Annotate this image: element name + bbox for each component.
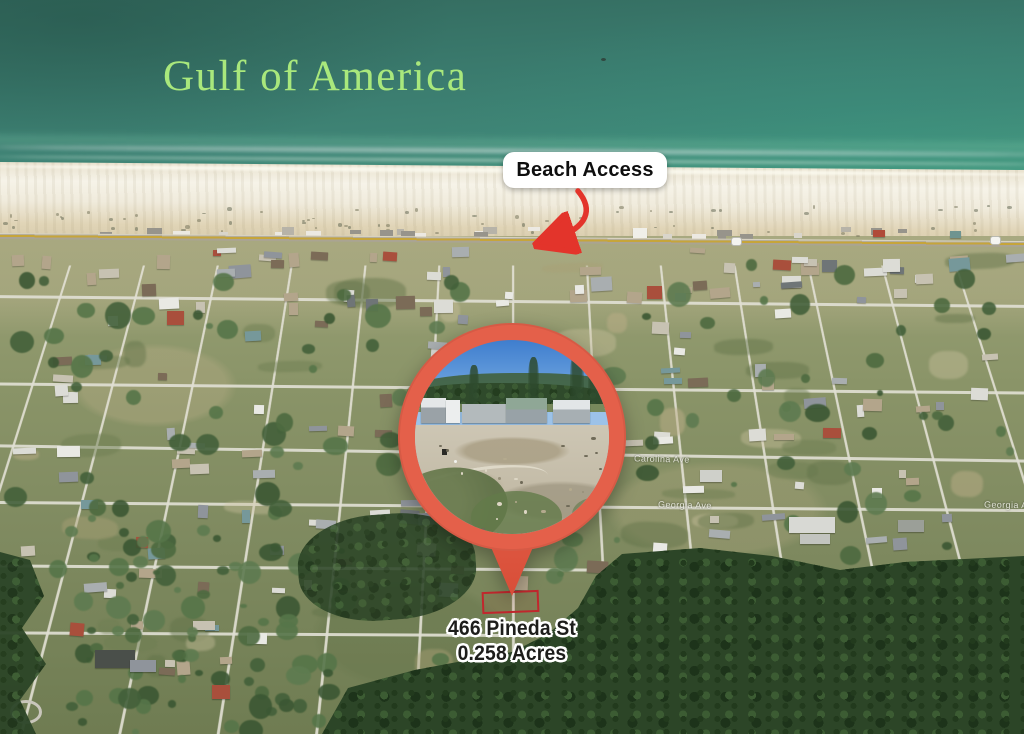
house <box>496 299 510 306</box>
dune-scrub <box>185 225 190 229</box>
ground-speck <box>584 455 588 457</box>
house <box>693 281 708 291</box>
house <box>245 331 262 341</box>
lot-size-line: 0.258 Acres <box>448 641 576 666</box>
house <box>172 459 191 469</box>
tree <box>224 720 239 733</box>
tree <box>112 500 129 518</box>
tree <box>790 294 810 314</box>
dune-scrub <box>87 211 91 214</box>
beach-house <box>282 227 294 234</box>
tree <box>779 401 801 422</box>
tree <box>318 684 339 700</box>
ground-patch <box>607 313 627 334</box>
tree <box>279 699 294 711</box>
dune-scrub <box>938 209 943 211</box>
house <box>781 281 802 289</box>
house <box>505 292 513 300</box>
beach-access-text: Beach Access <box>516 159 653 182</box>
tree <box>834 265 855 285</box>
house <box>753 282 760 288</box>
tree <box>758 369 775 387</box>
tree <box>74 592 93 611</box>
tree <box>805 404 830 422</box>
tree <box>647 399 664 416</box>
ground-speck <box>593 513 596 516</box>
pin-circle <box>398 323 626 551</box>
tree <box>119 528 129 537</box>
tree <box>239 720 263 734</box>
tree <box>48 357 59 368</box>
ground-speck <box>569 488 572 491</box>
tree <box>209 406 223 420</box>
tree <box>44 328 64 344</box>
house <box>651 321 668 334</box>
house <box>309 425 327 431</box>
dune-scrub <box>56 213 59 217</box>
building <box>789 517 835 533</box>
ground-patch <box>929 351 968 379</box>
house <box>1005 253 1024 262</box>
tree <box>78 718 87 725</box>
house <box>217 247 236 253</box>
tree <box>727 389 741 402</box>
tree <box>731 482 737 487</box>
tree <box>323 437 347 454</box>
ground-patch <box>950 470 983 497</box>
tree <box>217 566 228 574</box>
aerial-map-scene: Carolina Ave Georgia Ave Georgia Ave <box>0 0 1024 734</box>
tree <box>77 303 94 318</box>
tree <box>982 302 995 315</box>
tree <box>249 694 272 719</box>
house <box>863 398 882 411</box>
dune-scrub <box>227 207 232 211</box>
gulf-title: Gulf of America <box>163 52 467 101</box>
dune-scrub <box>813 205 815 209</box>
tree <box>99 350 113 362</box>
tree <box>270 446 284 458</box>
tree <box>126 572 137 582</box>
house <box>420 306 433 316</box>
house <box>21 545 36 556</box>
house <box>971 388 988 400</box>
ground-speck <box>439 445 443 447</box>
house <box>99 269 119 278</box>
house <box>57 446 80 457</box>
dune-scrub <box>338 223 343 227</box>
house <box>710 516 719 523</box>
tree <box>760 296 768 304</box>
tree <box>700 317 715 329</box>
house <box>197 505 208 518</box>
tree <box>746 259 758 271</box>
ground-patch <box>714 338 774 355</box>
tree <box>919 412 928 420</box>
house <box>590 276 612 291</box>
dune-scrub <box>515 215 519 219</box>
tree <box>777 456 795 470</box>
house <box>396 296 415 309</box>
house <box>458 315 468 325</box>
house <box>627 292 643 304</box>
tree <box>89 499 106 516</box>
beach-house <box>898 229 907 233</box>
tree <box>71 382 81 392</box>
beach-house <box>841 227 851 232</box>
house <box>254 405 265 415</box>
house <box>906 477 919 485</box>
house <box>284 292 299 301</box>
tree <box>270 543 281 552</box>
tree <box>429 321 445 334</box>
house <box>289 303 298 315</box>
ground-speck <box>503 458 506 460</box>
photo-building <box>446 400 460 423</box>
ground-speck <box>595 452 598 454</box>
house <box>12 255 24 267</box>
building <box>130 660 156 672</box>
house <box>723 263 735 273</box>
photo-building <box>553 400 590 423</box>
tree <box>302 344 315 354</box>
tree <box>187 627 198 637</box>
tree <box>636 465 658 481</box>
route-shield-icon <box>731 237 742 246</box>
dune-scrub <box>135 227 138 231</box>
house <box>775 308 792 318</box>
building <box>633 228 647 238</box>
tree <box>1006 447 1014 456</box>
property-inset-photo <box>415 340 609 534</box>
dune-scrub <box>472 215 477 217</box>
tree <box>862 427 877 440</box>
house <box>942 514 952 522</box>
tree <box>217 320 237 340</box>
building <box>950 231 961 238</box>
property-boundary <box>482 590 540 614</box>
house <box>87 273 97 285</box>
house <box>55 384 69 396</box>
house <box>434 300 453 313</box>
dune-scrub <box>669 211 673 214</box>
tree <box>557 571 564 577</box>
house <box>272 587 285 593</box>
house <box>426 272 440 280</box>
street-label: Georgia Ave <box>984 500 1024 511</box>
house <box>383 252 398 262</box>
house <box>647 286 662 299</box>
house <box>893 537 908 549</box>
ground-speck <box>591 437 596 440</box>
dune-scrub <box>135 214 138 217</box>
house <box>13 447 36 454</box>
dune-scrub <box>302 222 307 224</box>
beach-house <box>794 233 802 237</box>
house <box>899 470 906 478</box>
tree <box>286 666 312 685</box>
dune-scrub <box>673 225 675 227</box>
dune-scrub <box>109 218 112 221</box>
house <box>832 377 847 383</box>
house <box>575 285 584 295</box>
route-shield-icon <box>990 236 1001 245</box>
tree <box>934 298 949 312</box>
property-address-label: 466 Pineda St 0.258 Acres <box>448 616 576 666</box>
tree <box>126 390 141 405</box>
house <box>165 660 175 667</box>
house <box>664 378 682 384</box>
photo-grass <box>471 491 562 534</box>
dune-scrub <box>10 214 12 218</box>
photo-building <box>421 398 446 423</box>
tree <box>174 587 181 593</box>
house <box>452 247 469 257</box>
house <box>894 289 907 298</box>
tree <box>80 472 93 483</box>
tree <box>801 374 810 384</box>
tree <box>244 677 254 686</box>
ground-speck <box>497 502 502 506</box>
tree <box>365 304 391 329</box>
dune-scrub <box>650 210 652 212</box>
dune-scrub <box>711 227 714 229</box>
house <box>142 283 156 295</box>
tree <box>112 626 123 636</box>
tree <box>146 520 172 543</box>
building <box>873 230 885 237</box>
house <box>158 297 179 309</box>
dune-scrub <box>804 212 809 215</box>
street-label: Carolina Ave <box>634 453 690 464</box>
building <box>95 650 135 668</box>
tree <box>444 275 459 290</box>
building <box>700 470 722 482</box>
building <box>212 685 230 699</box>
dune-scrub <box>619 206 624 209</box>
house <box>857 297 867 303</box>
tree <box>276 622 299 640</box>
tree <box>686 413 699 428</box>
tree <box>865 492 887 515</box>
house <box>688 377 708 387</box>
beach-house <box>350 230 361 235</box>
dune-scrub <box>974 209 978 211</box>
ground-speck <box>461 472 463 475</box>
dune-scrub <box>856 235 860 237</box>
house <box>369 253 377 263</box>
house <box>580 266 601 275</box>
house <box>177 661 191 675</box>
tree <box>181 596 205 619</box>
house <box>271 260 284 269</box>
house <box>774 434 794 440</box>
tree <box>19 272 35 289</box>
boat-speck <box>601 58 606 61</box>
house <box>158 372 167 380</box>
beach-house <box>717 230 732 235</box>
house <box>220 657 232 664</box>
dune-scrub <box>348 226 351 229</box>
street-label: Georgia Ave <box>658 499 712 510</box>
house <box>682 486 703 494</box>
house <box>338 426 354 437</box>
tree <box>155 565 176 586</box>
ground-speck <box>446 449 449 452</box>
tree <box>376 453 400 476</box>
photo-building <box>462 404 507 423</box>
house <box>156 254 169 268</box>
dune-scrub <box>415 208 418 212</box>
house <box>936 402 944 410</box>
tree <box>88 515 96 522</box>
house <box>749 428 767 441</box>
tree <box>323 669 333 677</box>
ground-speck <box>582 491 584 494</box>
ground-speck <box>561 445 565 447</box>
house <box>680 332 691 338</box>
house <box>253 469 275 477</box>
house <box>69 622 84 637</box>
tree <box>213 273 234 291</box>
house <box>674 348 686 356</box>
tree <box>39 276 49 285</box>
tree <box>172 650 186 661</box>
tree <box>554 546 578 572</box>
dune-scrub <box>61 217 64 220</box>
tree <box>118 688 141 710</box>
house <box>773 259 791 270</box>
tree <box>4 487 27 507</box>
tree <box>337 289 351 300</box>
dune-scrub <box>405 211 409 215</box>
tree <box>76 690 93 707</box>
dune-scrub <box>767 231 770 233</box>
tree <box>904 490 921 502</box>
beach-access-label: Beach Access <box>503 152 667 188</box>
house <box>167 310 184 324</box>
house <box>795 482 805 490</box>
dune-scrub <box>111 227 115 230</box>
tree <box>49 560 67 578</box>
house <box>242 510 250 523</box>
house <box>310 251 328 260</box>
house <box>189 464 208 475</box>
tree <box>105 302 130 329</box>
tree <box>932 411 943 420</box>
house <box>916 273 934 283</box>
house <box>242 450 263 458</box>
curved-arrow-icon <box>530 186 600 248</box>
house <box>288 253 299 267</box>
house <box>823 428 841 438</box>
tree <box>309 365 317 372</box>
house <box>792 257 808 263</box>
dune-scrub <box>3 222 7 225</box>
tree <box>132 729 139 734</box>
ground-speck <box>485 469 487 472</box>
house <box>53 374 74 383</box>
house <box>883 259 900 272</box>
tree <box>837 501 857 523</box>
ground-speck <box>541 510 546 514</box>
ground-speck <box>524 510 527 513</box>
ground-speck <box>566 505 570 507</box>
tree <box>293 462 303 471</box>
ground-speck <box>460 524 464 528</box>
tree <box>143 610 165 631</box>
building <box>800 534 830 544</box>
tree <box>116 582 124 589</box>
ground-patch <box>123 341 146 368</box>
ground-patch <box>782 440 836 456</box>
tree <box>10 331 34 353</box>
ground-speck <box>599 468 602 470</box>
pine-tree <box>469 365 479 408</box>
tree <box>954 269 976 289</box>
address-line: 466 Pineda St <box>448 616 576 641</box>
tree <box>942 542 952 550</box>
tree <box>87 627 96 633</box>
building <box>898 520 924 532</box>
tree <box>195 670 202 676</box>
dune-scrub <box>302 220 305 222</box>
house <box>709 287 730 299</box>
tree <box>250 658 265 672</box>
house <box>159 667 176 675</box>
house <box>59 471 78 481</box>
tree <box>432 653 449 666</box>
house <box>42 256 52 270</box>
tree <box>196 434 219 455</box>
tree <box>71 355 93 378</box>
photo-building <box>506 398 547 423</box>
